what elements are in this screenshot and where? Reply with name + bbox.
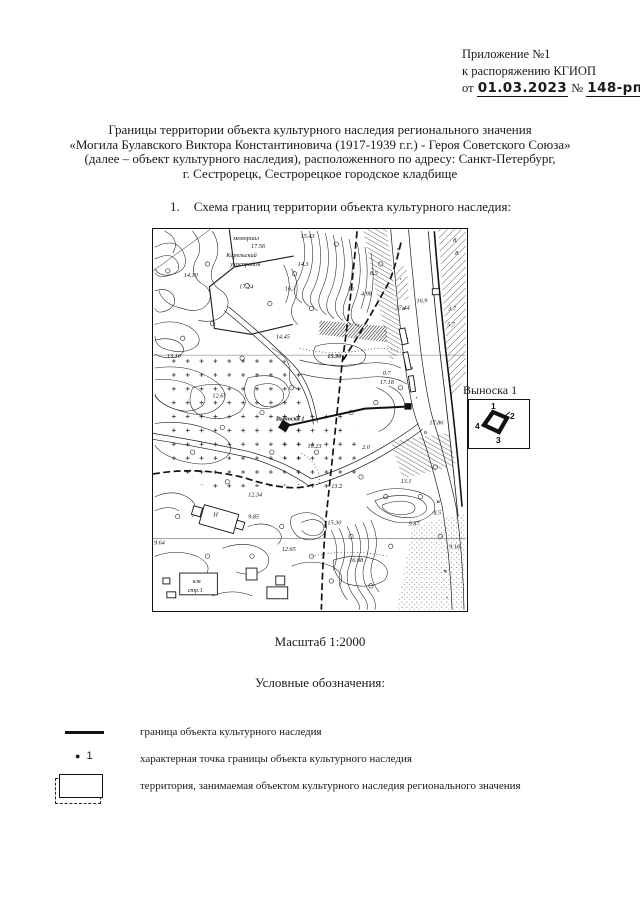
header-line2: к распоряжению КГИОП bbox=[462, 63, 640, 80]
header-date-handwritten: 01.03.2023 bbox=[477, 80, 568, 97]
legend-title: Условные обозначения: bbox=[0, 675, 640, 691]
map-label: 15.43 bbox=[301, 233, 315, 240]
callout-title: Выноска 1 bbox=[463, 383, 517, 398]
section1-number: 1. bbox=[170, 199, 180, 215]
boundary-line-symbol bbox=[65, 731, 104, 734]
map-label: 8. bbox=[455, 250, 460, 257]
header-line3: от 01.03.2023 № 148-рп bbox=[462, 80, 640, 97]
map-label: 0.7 bbox=[383, 370, 392, 377]
map-label: 16.3 bbox=[285, 286, 296, 293]
territory-symbol-solid-outline bbox=[59, 774, 103, 798]
legend-row-boundary: граница объекта культурного наследия bbox=[0, 726, 640, 754]
callout-diamond bbox=[484, 412, 507, 432]
section1-heading: 1.Схема границ территории объекта культу… bbox=[170, 199, 511, 215]
map-label: 8. bbox=[453, 237, 458, 244]
title-line1: Границы территории объекта культурного н… bbox=[0, 123, 640, 138]
map-label: 9.87 bbox=[409, 520, 421, 527]
map-label: укрепрайон bbox=[229, 261, 260, 268]
map-sand-area bbox=[397, 513, 466, 610]
point-number: 1 bbox=[86, 750, 92, 762]
header-number-sign: № bbox=[571, 81, 583, 95]
map-schema: мемориал17.56Карельскийукрепрайон15.4314… bbox=[152, 228, 468, 612]
map-label: 17.44 bbox=[396, 305, 410, 312]
title-line4: г. Сестрорецк, Сестрорецкое городское кл… bbox=[0, 167, 640, 182]
map-label: Выноска 1 bbox=[275, 415, 305, 422]
title-line3: (далее – объект культурного наследия), р… bbox=[0, 152, 640, 167]
section1-text: Схема границ территории объекта культурн… bbox=[194, 199, 511, 214]
map-label: 13.10 bbox=[167, 353, 182, 360]
map-label: 2.0 bbox=[362, 444, 371, 451]
map-label: Карельский bbox=[225, 252, 257, 259]
header-number-handwritten: 148-рп bbox=[586, 80, 640, 97]
legend-row-territory: территория, занимаемая объектом культурн… bbox=[0, 774, 640, 802]
callout-point-3: 3 bbox=[496, 435, 501, 445]
map-label: 14.3 bbox=[298, 261, 309, 268]
legend-label-territory: территория, занимаемая объектом культурн… bbox=[140, 780, 521, 792]
map-label: 12.65 bbox=[282, 546, 296, 553]
map-label: 13.1 bbox=[401, 478, 412, 485]
map-label: стр.1 bbox=[188, 587, 203, 594]
map-label: 16.08 bbox=[349, 557, 364, 564]
map-label: 14.10 bbox=[184, 272, 199, 279]
map-label: 13.2 bbox=[331, 483, 342, 490]
callout-box: 1 2 3 4 bbox=[468, 399, 530, 449]
header-prefix: от bbox=[462, 81, 474, 95]
header-line1: Приложение №1 bbox=[462, 46, 640, 63]
callout-point-4: 4 bbox=[475, 421, 480, 431]
map-label: 17.24 bbox=[239, 284, 253, 291]
map-label: 5.7 bbox=[447, 321, 456, 328]
map-label: мемориал bbox=[232, 235, 259, 242]
map-label: Н bbox=[212, 512, 218, 519]
map-label: 15.30 bbox=[327, 519, 342, 526]
map-scale-label: Масштаб 1:2000 bbox=[0, 634, 640, 650]
map-label: 9.64 bbox=[154, 539, 165, 546]
map-label: 4.98 bbox=[361, 291, 373, 298]
map-label: 9.85 bbox=[248, 514, 259, 521]
map-label: 17.18 bbox=[380, 379, 395, 386]
document-page: Приложение №1 к распоряжению КГИОП от 01… bbox=[0, 0, 640, 905]
header-block: Приложение №1 к распоряжению КГИОП от 01… bbox=[462, 46, 640, 97]
territory-symbol bbox=[59, 774, 103, 798]
map-label: 9.16 bbox=[449, 543, 461, 550]
title-line2: «Могила Булавского Виктора Константинови… bbox=[0, 138, 640, 153]
map-label: 16.9 bbox=[416, 298, 428, 305]
map-label: 17.86 bbox=[429, 419, 444, 426]
legend-label-boundary: граница объекта культурного наследия bbox=[140, 726, 322, 738]
map-label: кж bbox=[193, 578, 202, 585]
map-label: 3.7 bbox=[447, 306, 457, 313]
callout-svg: 1 2 3 4 bbox=[469, 400, 528, 447]
callout-point-1: 1 bbox=[491, 401, 496, 411]
map-label: 14.45 bbox=[276, 333, 290, 340]
map-label: 8.5 bbox=[370, 270, 378, 277]
map-label: 12.34 bbox=[248, 492, 262, 499]
document-title: Границы территории объекта культурного н… bbox=[0, 123, 640, 181]
map-label: 17.56 bbox=[251, 243, 266, 250]
map-svg: мемориал17.56Карельскийукрепрайон15.4314… bbox=[153, 229, 466, 610]
callout-point-2: 2 bbox=[510, 411, 515, 421]
map-label: 8.5 bbox=[433, 510, 441, 517]
map-label: 10.23 bbox=[308, 443, 322, 450]
legend-label-point: характерная точка границы объекта культу… bbox=[140, 753, 412, 765]
map-label: 12.61 bbox=[212, 393, 226, 400]
map-label: 15.90 bbox=[327, 353, 341, 360]
characteristic-point-symbol: ●1 bbox=[75, 750, 93, 762]
